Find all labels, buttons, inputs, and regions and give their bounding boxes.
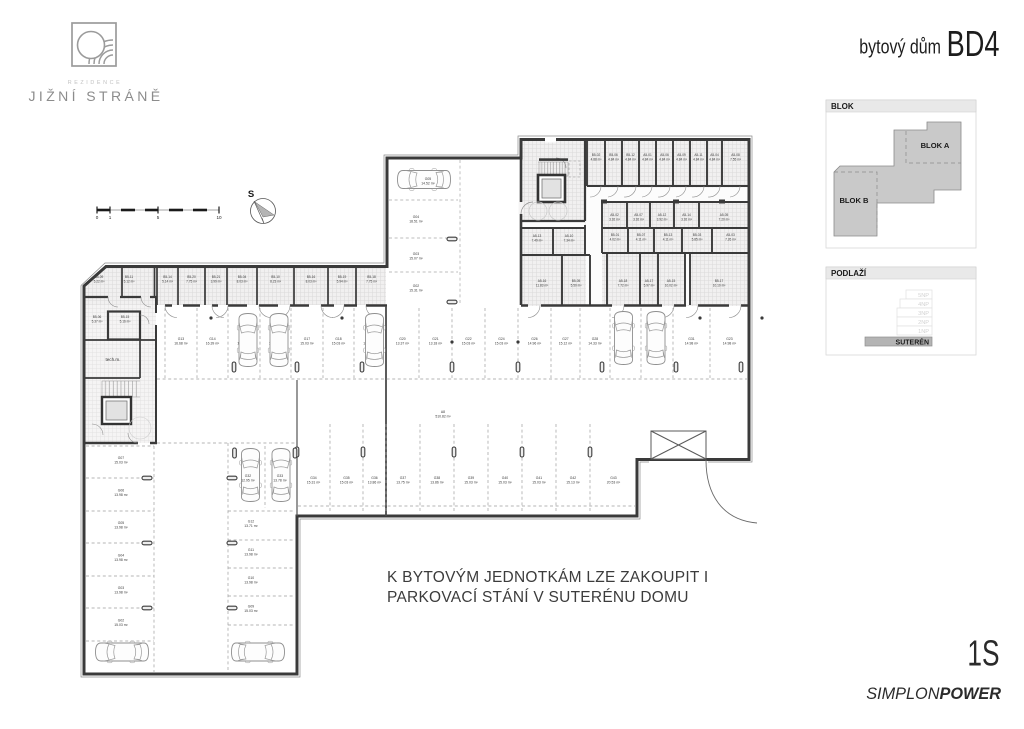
- svg-text:A5-114.84 m²: A5-114.84 m²: [693, 153, 704, 162]
- svg-text:A5-175.97 m²: A5-175.97 m²: [644, 279, 655, 288]
- svg-text:B5-108.23 m²: B5-108.23 m²: [270, 275, 281, 284]
- svg-text:A5-044.84 m²: A5-044.84 m²: [709, 153, 720, 162]
- svg-text:B5-014.02 m²: B5-014.02 m²: [610, 233, 621, 242]
- svg-text:B5-115.12 m²: B5-115.12 m²: [124, 275, 135, 284]
- svg-text:A5-057.20 m²: A5-057.20 m²: [719, 213, 730, 222]
- svg-text:1: 1: [109, 215, 112, 220]
- svg-text:A5-073.92 m²: A5-073.92 m²: [633, 213, 644, 222]
- svg-text:B5-207.75 m²: B5-207.75 m²: [186, 275, 197, 284]
- svg-text:B5-187.75 m²: B5-187.75 m²: [366, 275, 377, 284]
- svg-text:A5-014.84 m²: A5-014.84 m²: [642, 153, 653, 162]
- svg-text:A5-064.84 m²: A5-064.84 m²: [659, 153, 670, 162]
- svg-text:B5-155.16 m²: B5-155.16 m²: [120, 315, 131, 324]
- svg-text:B5-134.11 m²: B5-134.11 m²: [663, 233, 674, 242]
- svg-text:BLOK B: BLOK B: [839, 196, 869, 205]
- svg-text:1NP: 1NP: [918, 329, 929, 335]
- svg-text:B5-168.03 m²: B5-168.03 m²: [306, 275, 317, 284]
- svg-text:A5-087.55 m²: A5-087.55 m²: [730, 153, 741, 162]
- svg-text:B5-095.22 m²: B5-095.22 m²: [94, 275, 105, 284]
- svg-text:tech.m.: tech.m.: [105, 357, 120, 362]
- svg-text:SUTERÉN: SUTERÉN: [896, 338, 929, 347]
- svg-text:B5-065.37 m²: B5-065.37 m²: [92, 315, 103, 324]
- svg-text:0: 0: [96, 215, 99, 220]
- svg-text:SIMPLONPOWER: SIMPLONPOWER: [866, 685, 1001, 703]
- svg-text:B5-024.88 m²: B5-024.88 m²: [591, 153, 602, 162]
- svg-text:K BYTOVÝM JEDNOTKÁM LZE ZAKOUP: K BYTOVÝM JEDNOTKÁM LZE ZAKOUPIT I: [387, 569, 708, 586]
- svg-text:PARKOVACÍ STÁNÍ V SUTERÉNU DOM: PARKOVACÍ STÁNÍ V SUTERÉNU DOMU: [387, 589, 689, 606]
- svg-text:JIŽNÍ STRÁNĚ: JIŽNÍ STRÁNĚ: [29, 88, 164, 104]
- svg-text:B5-064.84 m²: B5-064.84 m²: [608, 153, 619, 162]
- svg-text:PODLAŽÍ: PODLAŽÍ: [831, 269, 867, 278]
- svg-text:B5-195.94 m²: B5-195.94 m²: [337, 275, 348, 284]
- svg-text:B5-074.11 m²: B5-074.11 m²: [636, 233, 647, 242]
- svg-text:BLOK: BLOK: [831, 102, 854, 111]
- svg-text:A5-094.84 m²: A5-094.84 m²: [676, 153, 687, 162]
- svg-text:BD4: BD4: [947, 23, 1000, 64]
- svg-text:A5-123.92 m²: A5-123.92 m²: [657, 213, 668, 222]
- svg-text:A5-187.72 m²: A5-187.72 m²: [618, 279, 629, 288]
- svg-text:5NP: 5NP: [918, 293, 929, 299]
- svg-text:B5-055.50 m²: B5-055.50 m²: [571, 279, 582, 288]
- svg-text:A5-107.34 m²: A5-107.34 m²: [564, 234, 575, 243]
- svg-text:3NP: 3NP: [918, 311, 929, 317]
- svg-text:A5-137.49 m²: A5-137.49 m²: [532, 234, 543, 243]
- svg-text:5: 5: [157, 215, 160, 220]
- svg-text:B5-213.99 m²: B5-213.99 m²: [211, 275, 222, 284]
- svg-text:2NP: 2NP: [918, 320, 929, 326]
- svg-text:A5-023.92 m²: A5-023.92 m²: [609, 213, 620, 222]
- svg-text:1S: 1S: [967, 632, 999, 673]
- svg-text:A5-143.92 m²: A5-143.92 m²: [681, 213, 692, 222]
- svg-text:S: S: [248, 189, 254, 200]
- svg-text:B5-048.03 m²: B5-048.03 m²: [237, 275, 248, 284]
- svg-text:10: 10: [216, 215, 222, 220]
- svg-text:4NP: 4NP: [918, 302, 929, 308]
- svg-text:bytový dům: bytový dům: [859, 35, 941, 58]
- svg-text:B5-124.84 m²: B5-124.84 m²: [625, 153, 636, 162]
- svg-text:REZIDENCE: REZIDENCE: [68, 80, 123, 86]
- svg-text:A5-037.26 m²: A5-037.26 m²: [725, 233, 736, 242]
- svg-text:B5-035.85 m²: B5-035.85 m²: [692, 233, 703, 242]
- svg-text:BLOK A: BLOK A: [921, 141, 950, 150]
- svg-text:B5-145.14 m²: B5-145.14 m²: [162, 275, 173, 284]
